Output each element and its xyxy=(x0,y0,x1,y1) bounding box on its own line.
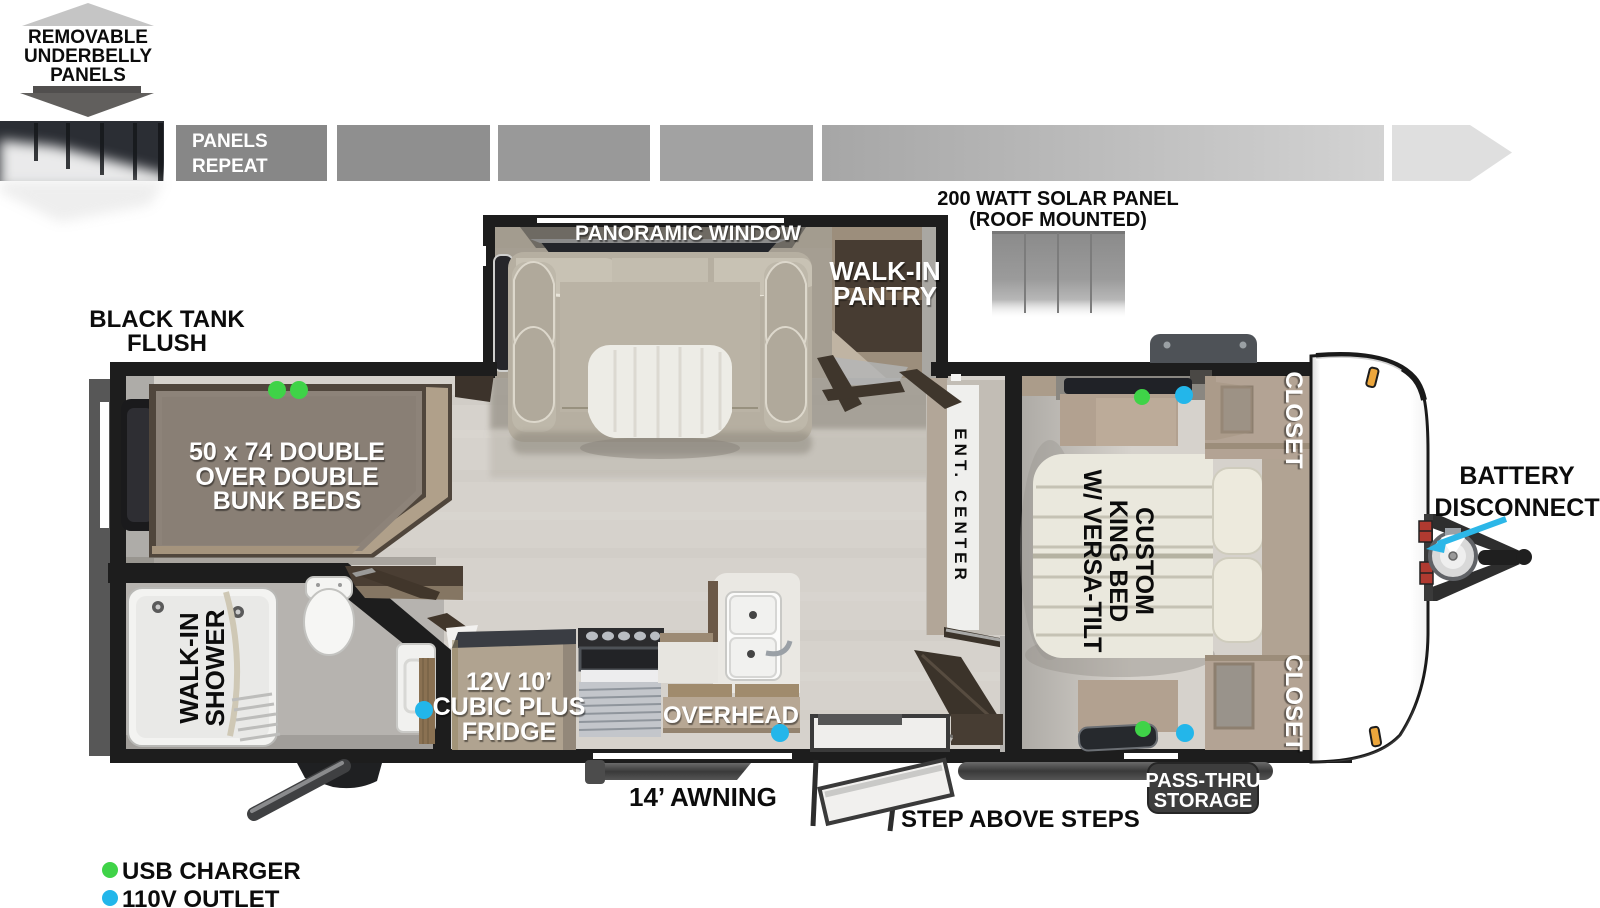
svg-text:CLOSET: CLOSET xyxy=(1280,371,1307,469)
svg-text:(ROOF MOUNTED): (ROOF MOUNTED) xyxy=(969,209,1147,231)
svg-text:W/ VERSA-TILT: W/ VERSA-TILT xyxy=(1078,470,1106,653)
svg-text:FLUSH: FLUSH xyxy=(127,330,207,357)
svg-text:CLOSET: CLOSET xyxy=(1280,654,1307,752)
svg-text:CUSTOM: CUSTOM xyxy=(1130,507,1158,615)
svg-text:ENT. CENTER: ENT. CENTER xyxy=(951,428,970,583)
svg-text:BATTERY: BATTERY xyxy=(1459,462,1575,490)
svg-text:USB CHARGER: USB CHARGER xyxy=(122,858,301,885)
svg-text:REMOVABLE: REMOVABLE xyxy=(28,27,148,48)
svg-text:PANORAMIC WINDOW: PANORAMIC WINDOW xyxy=(575,222,801,245)
svg-text:110V OUTLET: 110V OUTLET xyxy=(122,886,280,908)
svg-text:PANTRY: PANTRY xyxy=(833,281,937,311)
svg-text:BUNK BEDS: BUNK BEDS xyxy=(213,487,362,515)
svg-text:PANELS: PANELS xyxy=(192,131,268,152)
svg-text:PASS-THRU: PASS-THRU xyxy=(1145,770,1260,792)
svg-text:STORAGE: STORAGE xyxy=(1154,790,1253,812)
svg-text:BLACK TANK: BLACK TANK xyxy=(89,306,245,333)
svg-text:200 WATT SOLAR PANEL: 200 WATT SOLAR PANEL xyxy=(937,188,1179,210)
svg-text:CUBIC PLUS: CUBIC PLUS xyxy=(433,693,586,721)
svg-text:12V 10’: 12V 10’ xyxy=(466,668,552,696)
svg-text:REPEAT: REPEAT xyxy=(192,156,268,177)
svg-text:50 x 74 DOUBLE: 50 x 74 DOUBLE xyxy=(189,438,385,466)
svg-text:FRIDGE: FRIDGE xyxy=(462,718,556,746)
svg-text:SHOWER: SHOWER xyxy=(200,609,230,726)
svg-text:PANELS: PANELS xyxy=(50,65,126,86)
svg-text:KING BED: KING BED xyxy=(1104,500,1132,622)
svg-text:UNDERBELLY: UNDERBELLY xyxy=(24,46,152,67)
svg-text:STEP ABOVE STEPS: STEP ABOVE STEPS xyxy=(901,806,1140,833)
svg-text:DISCONNECT: DISCONNECT xyxy=(1434,494,1599,522)
svg-text:14’ AWNING: 14’ AWNING xyxy=(629,782,777,812)
